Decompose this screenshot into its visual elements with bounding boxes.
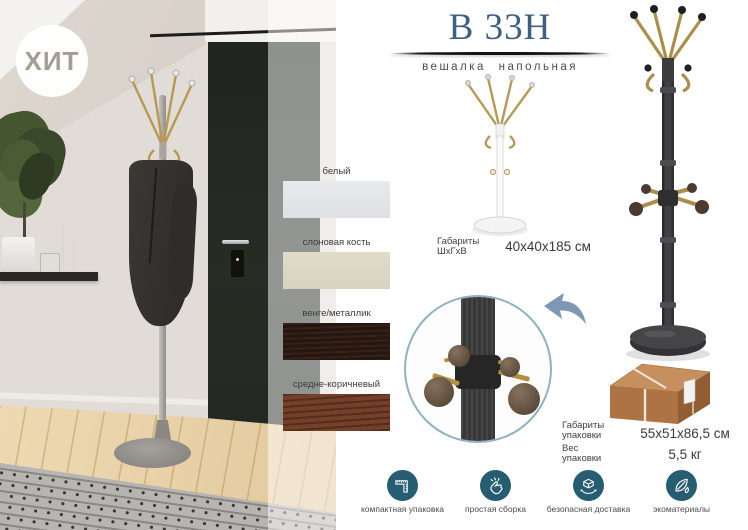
white-rack-image: [452, 72, 548, 240]
detail-knob: [448, 345, 470, 367]
package-size-value: 55х51х86,5 см: [630, 426, 740, 441]
plant-stem: [23, 202, 26, 240]
product-card: ХИТ белый слоновая кость венге/металлик …: [0, 0, 748, 530]
feature-label: экоматериалы: [653, 504, 710, 514]
zoom-arrow-icon: [542, 291, 588, 329]
package-weight-value: 5,5 кг: [630, 447, 740, 462]
feature-eco-materials: экоматериалы: [635, 470, 728, 514]
wall-shelf: [0, 272, 98, 281]
leaf-icon: [666, 470, 697, 501]
title-divider: [388, 52, 612, 55]
swatch-white: [283, 181, 390, 218]
size-label-line2: ШхГхВ: [437, 247, 479, 257]
plant-pot: [2, 237, 35, 276]
detail-knob: [508, 383, 540, 415]
snap-fingers-icon: [480, 470, 511, 501]
size-value: 40х40х185 см: [493, 239, 603, 254]
package-weight-label-line2: упаковки: [562, 454, 601, 464]
dark-rack-image: [600, 4, 736, 366]
door-lock: [231, 250, 244, 277]
product-title: В 33Н: [390, 6, 610, 49]
swatch-wenge: [283, 323, 390, 360]
coat-rack-base: [114, 438, 191, 468]
baseboard: [0, 392, 208, 405]
hands-box-icon: [573, 470, 604, 501]
swatch-ivory: [283, 252, 390, 289]
glassware: [40, 253, 60, 274]
swatch-label-brown: средне-коричневый: [283, 379, 390, 390]
package-box-image: [600, 356, 718, 426]
color-swatches: белый слоновая кость венге/металлик сред…: [283, 166, 390, 450]
feature-label: простая сборка: [465, 504, 526, 514]
features-row: компактная упаковка простая сборка безоп…: [356, 470, 728, 514]
swatch-label-wenge: венге/металлик: [283, 308, 390, 319]
swatch-brown: [283, 394, 390, 431]
hit-badge: ХИТ: [16, 25, 88, 97]
feature-compact-packaging: компактная упаковка: [356, 470, 449, 514]
feature-easy-assembly: простая сборка: [449, 470, 542, 514]
package-size-label-line2: упаковки: [562, 431, 604, 441]
door-handle: [222, 240, 249, 244]
door-lock-light: [236, 258, 239, 261]
size-label: Габариты ШхГхВ: [437, 237, 479, 257]
detail-knob: [424, 377, 454, 407]
feature-label: компактная упаковка: [361, 504, 444, 514]
ruler-icon: [387, 470, 418, 501]
package-weight-label: Вес упаковки: [562, 444, 601, 464]
feature-label: безопасная доставка: [547, 504, 630, 514]
coat-rack-hooks: [118, 62, 210, 167]
detail-zoom-circle: [404, 295, 552, 443]
package-size-label: Габариты упаковки: [562, 421, 604, 441]
jacket-sleeve: [167, 181, 198, 300]
candlestick: [73, 238, 75, 272]
detail-knob: [500, 357, 520, 377]
hit-badge-label: ХИТ: [25, 46, 80, 77]
feature-safe-delivery: безопасная доставка: [542, 470, 635, 514]
swatch-label-white: белый: [283, 166, 390, 177]
candlestick: [62, 224, 64, 272]
swatch-label-ivory: слоновая кость: [283, 237, 390, 248]
